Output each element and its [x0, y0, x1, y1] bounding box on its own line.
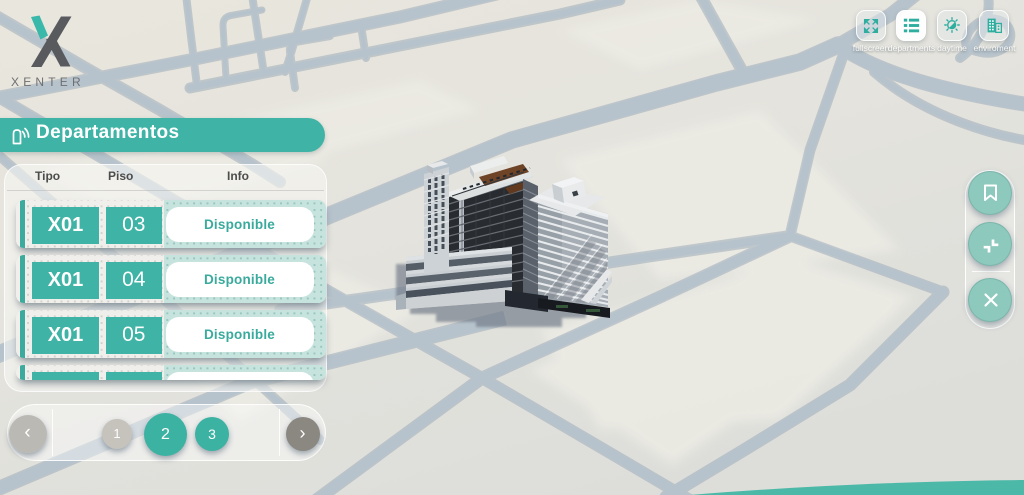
svg-text:XENTER: XENTER	[11, 75, 85, 89]
